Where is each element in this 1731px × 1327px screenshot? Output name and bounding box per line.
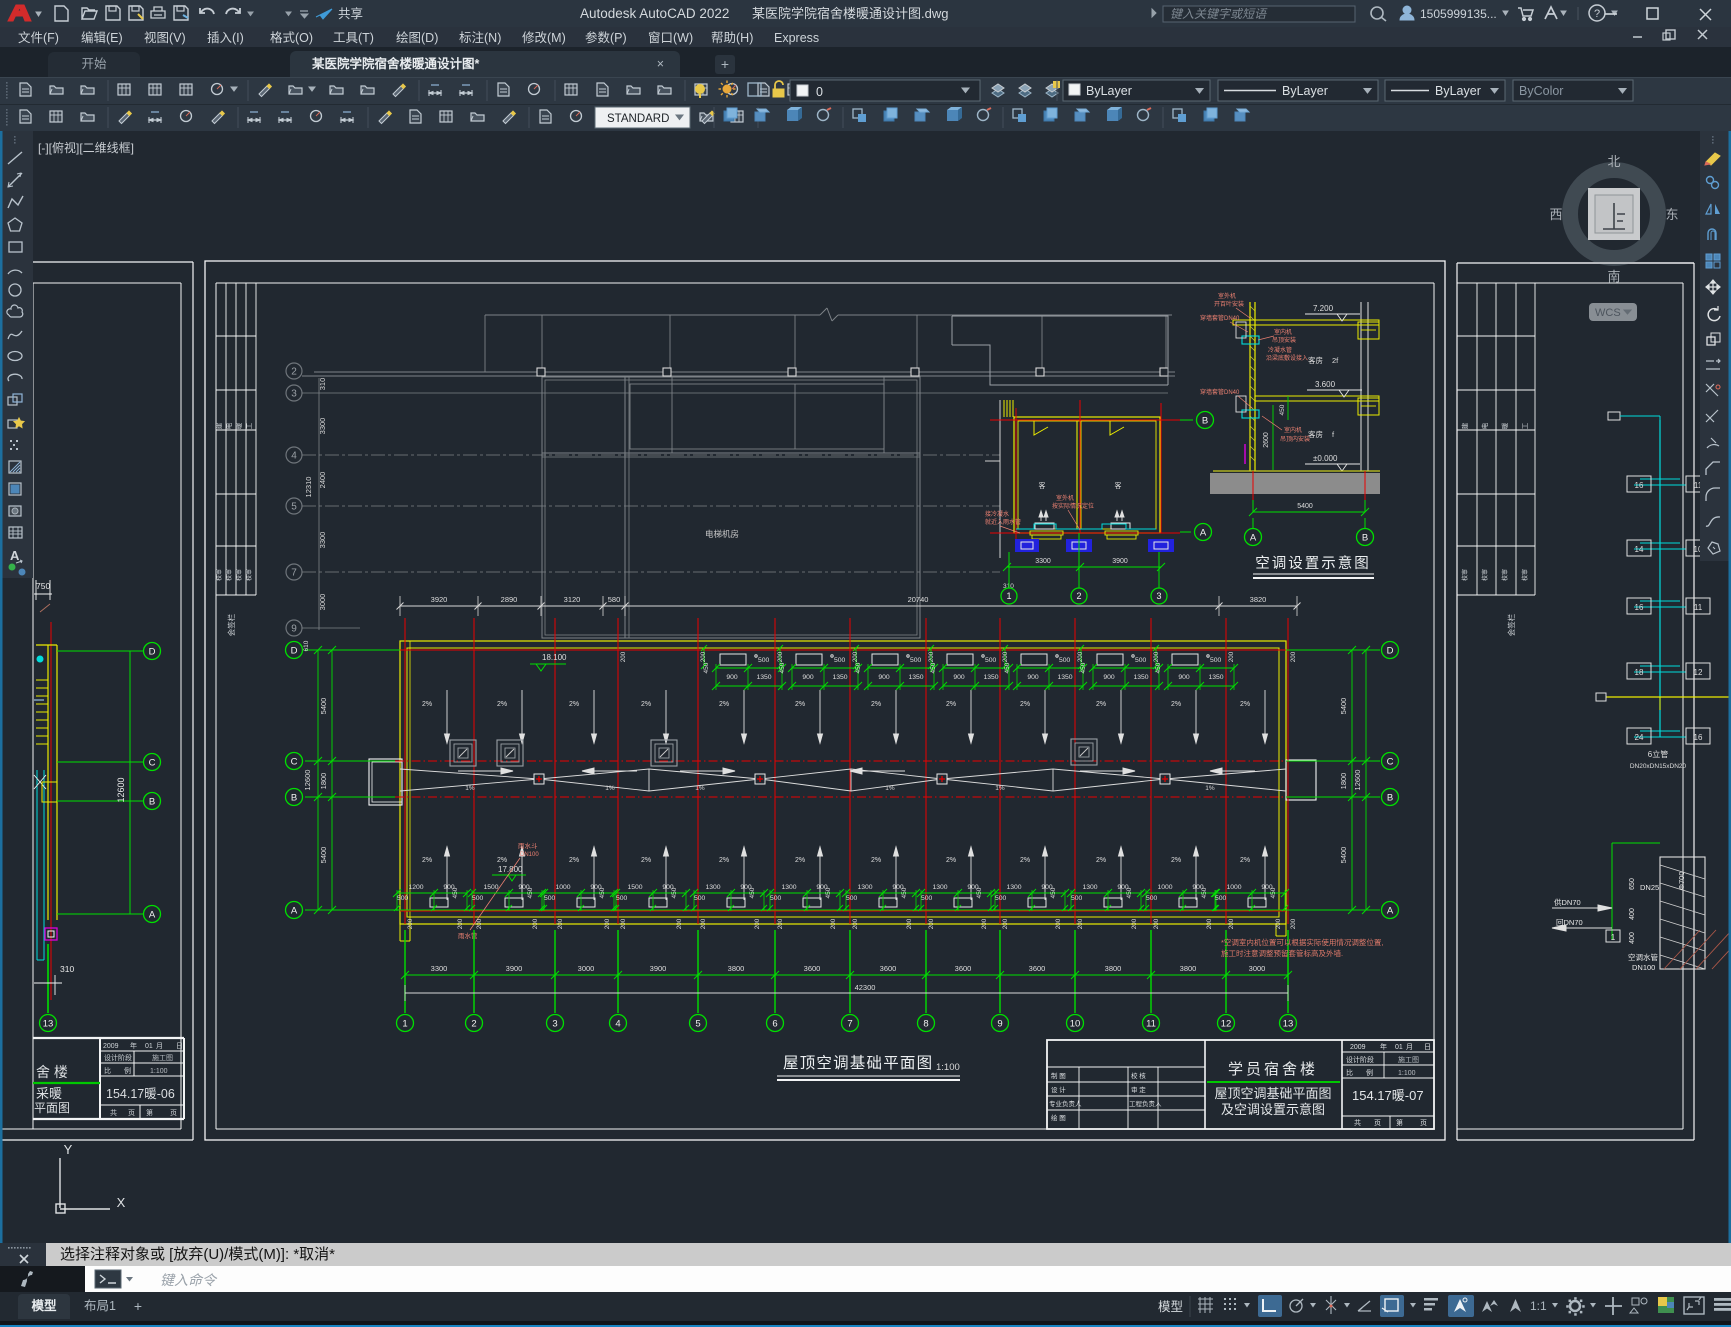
svg-text:450: 450	[671, 887, 678, 898]
svg-text:400: 400	[1629, 908, 1636, 920]
svg-text:1500: 1500	[627, 884, 642, 891]
svg-text:共: 共	[1354, 1118, 1361, 1127]
svg-text:11: 11	[1694, 603, 1703, 612]
svg-text:C: C	[291, 756, 298, 767]
svg-text:450: 450	[1080, 662, 1087, 673]
svg-text:A: A	[1200, 527, 1207, 538]
svg-text:室内机: 室内机	[1274, 328, 1292, 336]
svg-text:500: 500	[846, 895, 858, 902]
svg-text:200: 200	[1228, 918, 1235, 929]
svg-text:2f: 2f	[1332, 356, 1339, 365]
svg-text:200: 200	[457, 918, 464, 929]
svg-text:5400: 5400	[1297, 503, 1313, 510]
svg-text:3: 3	[1156, 591, 1161, 601]
svg-text:南: 南	[1607, 269, 1620, 284]
svg-text:例: 例	[1366, 1068, 1373, 1077]
svg-text:200: 200	[906, 918, 913, 929]
svg-text:1350: 1350	[908, 674, 923, 681]
svg-text:650: 650	[1629, 878, 1636, 890]
svg-text:DN25: DN25	[1640, 883, 1659, 892]
svg-text:接冷凝水: 接冷凝水	[985, 510, 1009, 518]
svg-text:200: 200	[532, 918, 539, 929]
svg-text:1000: 1000	[555, 884, 570, 891]
svg-text:1:100: 1:100	[150, 1068, 168, 1075]
svg-text:屋顶空调基础平面图: 屋顶空调基础平面图	[783, 1054, 933, 1072]
svg-text:窗口(W): 窗口(W)	[648, 31, 693, 45]
svg-text:2%: 2%	[946, 701, 956, 708]
svg-text:450: 450	[825, 887, 832, 898]
svg-text:2%: 2%	[497, 857, 507, 864]
svg-text:工具(T): 工具(T)	[333, 31, 374, 45]
svg-text:审 定: 审 定	[1131, 1085, 1146, 1094]
svg-text:500: 500	[1146, 895, 1158, 902]
svg-text:比: 比	[104, 1066, 111, 1075]
svg-text:1%: 1%	[995, 785, 1005, 792]
svg-text:客: 客	[1115, 481, 1122, 490]
svg-text:450: 450	[930, 662, 937, 673]
svg-text:900: 900	[1178, 674, 1190, 681]
svg-text:12: 12	[1694, 668, 1703, 677]
svg-text:校审: 校审	[1501, 569, 1509, 581]
svg-text:工: 工	[246, 422, 253, 429]
svg-text:500: 500	[694, 895, 706, 902]
svg-text:1800: 1800	[319, 773, 328, 790]
svg-text:1300: 1300	[932, 884, 947, 891]
svg-text:校审: 校审	[215, 569, 223, 581]
svg-text:供DN70: 供DN70	[1554, 897, 1581, 907]
svg-text:穿墙套管DN40: 穿墙套管DN40	[1200, 388, 1240, 396]
svg-text:按实际情况定位: 按实际情况定位	[1052, 502, 1094, 510]
svg-text:3300: 3300	[318, 532, 327, 549]
svg-text:开百叶安装: 开百叶安装	[1214, 300, 1244, 308]
svg-text:插入(I): 插入(I)	[207, 31, 244, 45]
svg-text:设计阶段: 设计阶段	[104, 1053, 132, 1062]
svg-text:1%: 1%	[605, 785, 615, 792]
svg-text:北: 北	[1607, 154, 1620, 169]
svg-text:24: 24	[1635, 733, 1644, 742]
svg-text:1800: 1800	[1339, 773, 1348, 790]
svg-text:电: 电	[224, 422, 233, 429]
svg-text:修改(M): 修改(M)	[522, 30, 566, 45]
svg-text:200: 200	[852, 651, 859, 662]
svg-text:1350: 1350	[1057, 674, 1072, 681]
svg-text:空调设置示意图: 空调设置示意图	[1255, 554, 1371, 572]
svg-text:2%: 2%	[719, 701, 729, 708]
svg-text:200: 200	[1290, 918, 1297, 929]
svg-text:450: 450	[1279, 404, 1286, 415]
svg-text:12: 12	[1221, 1018, 1232, 1029]
svg-text:13: 13	[1283, 1018, 1294, 1029]
svg-text:200: 200	[700, 918, 707, 929]
svg-text:编辑(E): 编辑(E)	[81, 30, 123, 45]
svg-text:1%: 1%	[465, 785, 475, 792]
svg-text:C: C	[149, 757, 156, 768]
svg-text:1300: 1300	[1006, 884, 1021, 891]
svg-text:8: 8	[923, 1018, 928, 1029]
svg-text:1300: 1300	[1082, 884, 1097, 891]
svg-text:STANDARD: STANDARD	[607, 113, 669, 125]
svg-text:建: 建	[214, 422, 223, 429]
svg-text:Y: Y	[64, 1142, 73, 1157]
svg-text:1: 1	[1006, 591, 1011, 601]
svg-text:DN100: DN100	[1632, 963, 1655, 972]
svg-text:400: 400	[1629, 932, 1636, 944]
svg-text:采暖: 采暖	[36, 1086, 62, 1101]
svg-text:帮助(H): 帮助(H)	[711, 31, 753, 45]
svg-text:3600: 3600	[804, 964, 821, 973]
svg-text:2400: 2400	[318, 472, 327, 489]
svg-text:2009: 2009	[103, 1043, 119, 1050]
svg-text:屋顶空调基础平面图: 屋顶空调基础平面图	[1214, 1086, 1331, 1101]
svg-text:2%: 2%	[946, 857, 956, 864]
svg-text:18.100: 18.100	[542, 653, 567, 662]
svg-text:3000: 3000	[318, 594, 327, 611]
svg-text:200: 200	[476, 918, 483, 929]
svg-text:500: 500	[985, 657, 997, 664]
svg-text:1:100: 1:100	[1398, 1070, 1416, 1077]
svg-text:10: 10	[1070, 1018, 1081, 1029]
svg-text:3000: 3000	[1249, 964, 1266, 973]
svg-text:2%: 2%	[422, 701, 432, 708]
svg-text:580: 580	[608, 595, 621, 604]
svg-text:200: 200	[676, 918, 683, 929]
svg-text:校审: 校审	[225, 569, 233, 581]
svg-text:建: 建	[1460, 422, 1469, 429]
svg-text:Autodesk AutoCAD 2022: Autodesk AutoCAD 2022	[580, 6, 729, 21]
svg-text:5400: 5400	[1339, 698, 1348, 715]
svg-text:舍 楼: 舍 楼	[36, 1064, 68, 1080]
svg-text:视图(V): 视图(V)	[144, 30, 186, 45]
svg-text:1: 1	[1611, 933, 1616, 942]
svg-text:校审: 校审	[1461, 569, 1469, 581]
svg-text:3600: 3600	[880, 964, 897, 973]
svg-text:D: D	[1387, 645, 1394, 656]
svg-text:9: 9	[291, 624, 297, 635]
svg-text:制 图: 制 图	[1051, 1071, 1066, 1080]
svg-text:DN100: DN100	[520, 852, 539, 858]
svg-text:模型: 模型	[1158, 1300, 1183, 1314]
svg-text:3900: 3900	[1112, 558, 1128, 565]
svg-text:18: 18	[1635, 668, 1644, 677]
svg-text:校 核: 校 核	[1131, 1071, 1146, 1080]
svg-text:1350: 1350	[1208, 674, 1223, 681]
svg-text:200: 200	[620, 918, 627, 929]
svg-text:900: 900	[1103, 674, 1115, 681]
svg-text:42300: 42300	[855, 983, 876, 992]
svg-text:1%: 1%	[695, 785, 705, 792]
svg-text:5: 5	[291, 502, 297, 513]
svg-text:4: 4	[291, 451, 297, 462]
svg-text:页: 页	[128, 1109, 135, 1117]
svg-text:2%: 2%	[1240, 701, 1250, 708]
svg-text:11: 11	[1146, 1018, 1156, 1029]
svg-text:450: 450	[1201, 887, 1208, 898]
svg-text:2%: 2%	[871, 857, 881, 864]
svg-text:西: 西	[1549, 207, 1562, 222]
svg-text:吊顶安装: 吊顶安装	[1272, 336, 1296, 344]
svg-text:12310: 12310	[304, 477, 313, 498]
svg-text:500: 500	[1215, 895, 1227, 902]
svg-text:750: 750	[36, 581, 50, 591]
svg-text:日: 日	[1424, 1043, 1431, 1051]
svg-text:500: 500	[921, 895, 933, 902]
svg-text:200: 200	[928, 918, 935, 929]
svg-text:页: 页	[1374, 1119, 1381, 1127]
svg-text:绘图(D): 绘图(D)	[396, 30, 438, 45]
svg-text:17.800: 17.800	[498, 865, 523, 874]
svg-text:5400: 5400	[319, 847, 328, 864]
svg-text:500: 500	[397, 895, 409, 902]
svg-text:3800: 3800	[1105, 964, 1122, 973]
svg-text:450: 450	[779, 662, 786, 673]
svg-text:200: 200	[1002, 918, 1009, 929]
svg-text:1000: 1000	[1157, 884, 1172, 891]
svg-text:1350: 1350	[983, 674, 998, 681]
svg-text:2%: 2%	[641, 857, 651, 864]
svg-text:12600: 12600	[1353, 770, 1362, 791]
svg-text:沿梁底敷设接入: 沿梁底敷设接入	[1266, 354, 1308, 362]
svg-text:1300: 1300	[705, 884, 720, 891]
svg-text:ByLayer: ByLayer	[1282, 84, 1328, 98]
svg-text:200: 200	[1077, 918, 1084, 929]
svg-text:A: A	[149, 909, 156, 920]
svg-text:450: 450	[749, 887, 756, 898]
svg-text:500: 500	[472, 895, 484, 902]
svg-text:12600: 12600	[303, 770, 312, 791]
svg-text:客房: 客房	[1308, 355, 1323, 365]
svg-text:900: 900	[878, 674, 890, 681]
svg-text:室外机: 室外机	[1218, 292, 1236, 300]
svg-text:6立管: 6立管	[1648, 749, 1668, 759]
svg-text:施工图: 施工图	[1398, 1055, 1419, 1064]
svg-text:2%: 2%	[641, 701, 651, 708]
svg-text:暖: 暖	[235, 422, 243, 429]
svg-text:2%: 2%	[1096, 857, 1106, 864]
svg-text:1500: 1500	[483, 884, 498, 891]
svg-text:WCS: WCS	[1595, 307, 1621, 319]
svg-text:7: 7	[291, 568, 297, 579]
svg-text:16: 16	[1635, 603, 1644, 612]
svg-text:键入命令: 键入命令	[160, 1272, 218, 1288]
svg-text:2009: 2009	[1350, 1044, 1366, 1051]
svg-text:3000: 3000	[578, 964, 595, 973]
svg-text:吊顶内安装: 吊顶内安装	[1280, 435, 1310, 443]
svg-text:3: 3	[552, 1018, 557, 1029]
svg-text:A: A	[291, 905, 298, 916]
svg-text:客: 客	[1039, 481, 1046, 490]
svg-text:450: 450	[855, 662, 862, 673]
svg-text:X: X	[117, 1195, 126, 1210]
svg-text:B: B	[1362, 532, 1368, 543]
svg-text:450: 450	[1126, 887, 1133, 898]
svg-text:绘 图: 绘 图	[1051, 1113, 1066, 1122]
svg-text:200: 200	[1153, 651, 1160, 662]
svg-text:13: 13	[43, 1018, 54, 1029]
svg-text:穿墙套管DN40: 穿墙套管DN40	[1200, 314, 1240, 322]
svg-text:校审: 校审	[1521, 569, 1529, 581]
svg-text:310: 310	[318, 378, 327, 391]
svg-text:±0.000: ±0.000	[1313, 454, 1338, 463]
svg-text:校审: 校审	[235, 569, 243, 581]
svg-text:500: 500	[834, 657, 846, 664]
svg-text:200: 200	[1275, 918, 1282, 929]
svg-text:月: 月	[1406, 1043, 1413, 1051]
svg-text:2%: 2%	[871, 701, 881, 708]
svg-text:200: 200	[1206, 918, 1213, 929]
svg-text:Φ700: Φ700	[1677, 872, 1686, 891]
svg-text:ByColor: ByColor	[1519, 84, 1563, 98]
svg-text:3: 3	[291, 389, 297, 400]
svg-text:专业负责人: 专业负责人	[1049, 1099, 1082, 1108]
svg-text:[-][俯视][二维线框]: [-][俯视][二维线框]	[38, 140, 134, 155]
svg-text:2600: 2600	[1263, 432, 1270, 448]
svg-text:14: 14	[1635, 545, 1644, 554]
svg-text:平面图: 平面图	[34, 1101, 70, 1115]
svg-text:01: 01	[145, 1043, 153, 1050]
svg-text:B: B	[1202, 415, 1208, 426]
svg-text:格式(O): 格式(O)	[270, 30, 313, 45]
svg-text:第: 第	[1396, 1118, 1403, 1127]
svg-text:900: 900	[726, 674, 738, 681]
svg-text:7.200: 7.200	[1313, 304, 1334, 313]
svg-text:500: 500	[995, 895, 1007, 902]
svg-text:页: 页	[170, 1109, 177, 1117]
svg-text:2: 2	[291, 367, 297, 378]
svg-text:?: ?	[1594, 8, 1600, 20]
svg-text:1%: 1%	[885, 785, 895, 792]
svg-text:年: 年	[1380, 1042, 1387, 1051]
svg-text:2%: 2%	[795, 701, 805, 708]
svg-text:电: 电	[1480, 422, 1489, 429]
svg-text:450: 450	[976, 887, 983, 898]
svg-text:200: 200	[1228, 651, 1235, 662]
svg-text:450: 450	[452, 887, 459, 898]
svg-text:3120: 3120	[564, 595, 581, 604]
svg-text:200: 200	[852, 918, 859, 929]
svg-text:500: 500	[910, 657, 922, 664]
svg-text:DN20xDN15xDN20: DN20xDN15xDN20	[1630, 763, 1687, 770]
svg-text:3800: 3800	[728, 964, 745, 973]
svg-text:500: 500	[1059, 657, 1071, 664]
svg-text:3820: 3820	[1250, 595, 1267, 604]
svg-text:3.600: 3.600	[1315, 380, 1336, 389]
svg-text:参数(P): 参数(P)	[585, 30, 627, 45]
svg-text:4: 4	[615, 1018, 620, 1029]
svg-text:共享: 共享	[338, 6, 363, 21]
svg-text:1505999135...: 1505999135...	[1420, 7, 1497, 21]
svg-text:电梯机房: 电梯机房	[705, 529, 739, 539]
svg-text:01: 01	[1395, 1044, 1403, 1051]
svg-text:450: 450	[1004, 662, 1011, 673]
svg-text:1:1: 1:1	[1530, 1299, 1547, 1313]
svg-text:*空调室内机位置可以根据实际使用情况调整位置,: *空调室内机位置可以根据实际使用情况调整位置,	[1221, 937, 1384, 947]
svg-text:2%: 2%	[569, 857, 579, 864]
svg-text:B: B	[149, 796, 155, 807]
svg-text:450: 450	[599, 887, 606, 898]
svg-text:200: 200	[1002, 651, 1009, 662]
svg-text:450: 450	[901, 887, 908, 898]
svg-text:200: 200	[777, 918, 784, 929]
svg-text:16: 16	[1635, 481, 1644, 490]
svg-text:工程负责人: 工程负责人	[1129, 1099, 1162, 1108]
svg-text:暖: 暖	[1501, 422, 1509, 429]
svg-text:1200: 1200	[408, 884, 423, 891]
svg-text:500: 500	[758, 657, 770, 664]
svg-text:A: A	[1250, 532, 1257, 543]
svg-text:1:100: 1:100	[936, 1062, 960, 1073]
svg-text:1350: 1350	[832, 674, 847, 681]
svg-text:200: 200	[1153, 918, 1160, 929]
svg-text:月: 月	[156, 1042, 163, 1050]
svg-text:7: 7	[847, 1018, 852, 1029]
svg-text:900: 900	[953, 674, 965, 681]
svg-text:450: 450	[1050, 887, 1057, 898]
svg-text:工: 工	[1522, 422, 1529, 429]
svg-text:5400: 5400	[319, 698, 328, 715]
svg-text:会签栏: 会签栏	[226, 613, 236, 636]
svg-text:2: 2	[1076, 591, 1081, 601]
svg-text:客房: 客房	[1308, 429, 1323, 439]
svg-text:回DN70: 回DN70	[1556, 918, 1583, 927]
svg-text:310: 310	[60, 964, 74, 974]
svg-text:Express: Express	[774, 31, 819, 45]
svg-text:3600: 3600	[955, 964, 972, 973]
svg-text:200: 200	[620, 651, 627, 662]
svg-text:B: B	[1387, 792, 1393, 803]
svg-text:2%: 2%	[422, 857, 432, 864]
svg-text:5: 5	[695, 1018, 700, 1029]
svg-text:900: 900	[802, 674, 814, 681]
svg-text:200: 200	[557, 918, 564, 929]
svg-text:ByLayer: ByLayer	[1086, 84, 1132, 98]
svg-text:154.17暖-06: 154.17暖-06	[106, 1087, 175, 1101]
svg-text:施工时注意调整预留套管标高及外墙.: 施工时注意调整预留套管标高及外墙.	[1221, 948, 1343, 958]
svg-text:校审: 校审	[245, 569, 253, 581]
svg-text:D: D	[149, 646, 156, 657]
svg-text:3800: 3800	[1180, 964, 1197, 973]
svg-text:6: 6	[772, 1018, 777, 1029]
svg-text:雨水斗: 雨水斗	[518, 841, 538, 850]
svg-text:B: B	[291, 792, 297, 803]
svg-text:5400: 5400	[1339, 847, 1348, 864]
svg-text:16: 16	[1694, 733, 1703, 742]
svg-text:200: 200	[928, 651, 935, 662]
svg-text:东: 东	[1665, 207, 1678, 222]
svg-text:标注(N): 标注(N)	[459, 30, 501, 45]
svg-text:3300: 3300	[1035, 558, 1051, 565]
svg-text:3900: 3900	[506, 964, 523, 973]
svg-text:450: 450	[1155, 662, 1162, 673]
svg-text:C: C	[1387, 756, 1394, 767]
svg-text:2%: 2%	[719, 857, 729, 864]
svg-text:450: 450	[527, 887, 534, 898]
svg-text:键入关键字或短语: 键入关键字或短语	[1170, 7, 1268, 21]
svg-text:200: 200	[981, 918, 988, 929]
svg-text:日: 日	[176, 1042, 183, 1050]
svg-text:A: A	[1387, 905, 1394, 916]
svg-text:文件(F): 文件(F)	[18, 30, 59, 45]
svg-text:3900: 3900	[650, 964, 667, 973]
svg-text:2%: 2%	[795, 857, 805, 864]
svg-text:2%: 2%	[1020, 857, 1030, 864]
svg-text:雨水管: 雨水管	[458, 931, 478, 940]
svg-text:200: 200	[777, 651, 784, 662]
svg-text:冷凝水管: 冷凝水管	[1268, 346, 1292, 354]
svg-text:610: 610	[303, 640, 310, 651]
svg-text:年: 年	[130, 1041, 137, 1050]
svg-text:0: 0	[816, 85, 823, 99]
svg-text:例: 例	[124, 1066, 131, 1075]
